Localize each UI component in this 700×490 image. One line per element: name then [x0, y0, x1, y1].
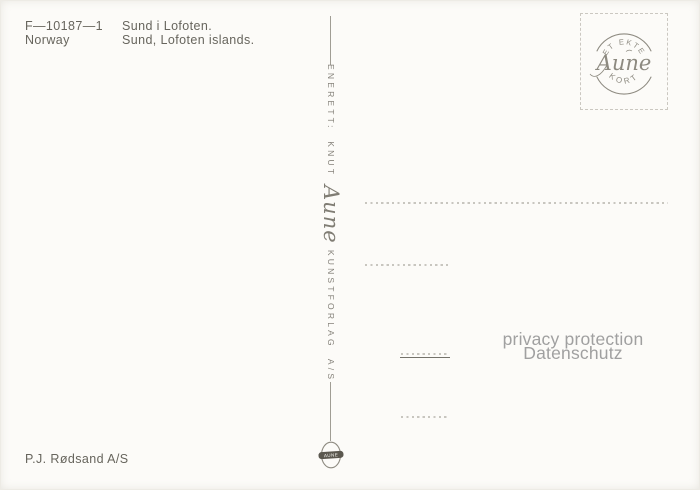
emblem-label: AUNE: [324, 452, 339, 458]
card-title-local: Sund i Lofoten.: [122, 20, 255, 34]
header-id-block: F—10187—1 Norway: [25, 20, 122, 47]
spine-copyright-text: ENERETT: KNUTAuneKUNSTFORLAG A/S: [319, 64, 343, 382]
privacy-watermark: privacy protection Datenschutz: [497, 332, 649, 360]
header-title-block: Sund i Lofoten. Sund, Lofoten islands.: [122, 20, 255, 47]
header: F—10187—1 Norway Sund i Lofoten. Sund, L…: [25, 20, 255, 47]
postcard-back: F—10187—1 Norway Sund i Lofoten. Sund, L…: [0, 0, 700, 490]
address-dashed-line-2: [365, 264, 449, 266]
address-solid-line: [400, 357, 450, 359]
aune-kort-logo-icon: ET EKTE KORT Aune: [582, 15, 666, 108]
address-dashed-line-1: [365, 202, 668, 204]
stamp-box: ET EKTE KORT Aune: [580, 13, 668, 110]
card-code: F—10187—1: [25, 20, 122, 34]
spine-text-end: KUNSTFORLAG A/S: [326, 250, 336, 382]
publisher-credit: P.J. Rødsand A/S: [25, 452, 128, 466]
spine-script-aune: Aune: [319, 185, 343, 244]
card-title-english: Sund, Lofoten islands.: [122, 34, 255, 48]
address-dashed-line-4: [401, 416, 449, 418]
address-dashed-line-3: [401, 353, 449, 355]
card-country: Norway: [25, 34, 122, 48]
spine-divider-line-top: [330, 16, 331, 65]
spine-text-start: ENERETT: KNUT: [326, 64, 336, 177]
spine-divider-line-bottom: [330, 382, 331, 441]
aune-publisher-emblem-icon: AUNE: [318, 440, 344, 470]
